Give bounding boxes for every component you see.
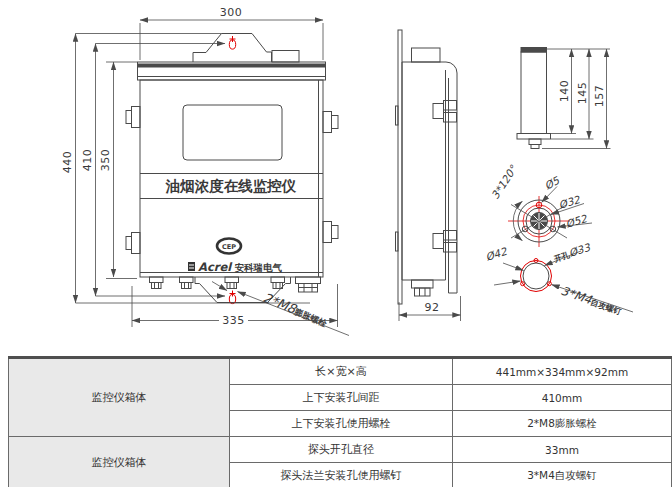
value-cell: 2*M8膨胀螺栓 bbox=[453, 411, 672, 437]
brand-text: Acrel 安科瑞电气 bbox=[198, 260, 282, 274]
angle-label: 3*120° bbox=[489, 163, 520, 201]
dim-440: 440 bbox=[61, 151, 74, 174]
param-cell: 探头开孔直径 bbox=[230, 437, 453, 463]
dia52-label: Ø52 bbox=[564, 212, 589, 230]
dim-92: 92 bbox=[425, 301, 440, 314]
value-cell: 441mm×334mm×92mm bbox=[453, 358, 672, 385]
hinge-upper bbox=[433, 101, 457, 123]
probe-flange bbox=[517, 134, 551, 140]
param-cell: 上下安装孔使用螺栓 bbox=[230, 411, 453, 437]
value-cell: 410mm bbox=[453, 385, 672, 411]
value-cell: 33mm bbox=[453, 437, 672, 463]
latch-right-upper bbox=[323, 112, 338, 133]
probe-side-view: 140 145 157 bbox=[517, 48, 611, 149]
m8-label: 2*M8膨胀螺栓 bbox=[261, 290, 330, 330]
latch-left-upper bbox=[126, 107, 140, 128]
m8-label-small: 膨胀螺栓 bbox=[292, 306, 329, 329]
dia42-label: Ø42 bbox=[484, 244, 510, 263]
latch-right-lower bbox=[323, 222, 338, 243]
large-gland bbox=[296, 277, 321, 292]
technical-drawing: 油烟浓度在线监控仪 CEP Acrel 安科瑞电气 bbox=[0, 0, 672, 346]
side-corner bbox=[446, 62, 457, 73]
opening-label-dia: Ø33 bbox=[567, 240, 593, 259]
group-cell-probe: 监控仪箱体 bbox=[9, 437, 230, 487]
mounting-plate bbox=[398, 30, 402, 304]
side-top-protrusion bbox=[412, 48, 441, 62]
table-row: 监控仪箱体 探头开孔直径 33mm bbox=[9, 437, 672, 463]
top-bracket-block bbox=[272, 51, 299, 63]
probe-hole-view: Ø42 开孔Ø33 3*M4自攻螺钉 bbox=[484, 240, 633, 317]
dim-300: 300 bbox=[220, 6, 243, 19]
dim-350: 350 bbox=[99, 149, 112, 172]
side-gland bbox=[412, 280, 434, 296]
group-cell-enclosure: 监控仪箱体 bbox=[9, 358, 230, 437]
flange-top-view: 3*120° Ø5 Ø32 Ø52 bbox=[489, 163, 592, 247]
dia5-label: Ø5 bbox=[542, 174, 562, 192]
page: 油烟浓度在线监控仪 CEP Acrel 安科瑞电气 bbox=[0, 0, 672, 487]
probe-cap bbox=[521, 48, 547, 53]
top-keyhole-icon bbox=[229, 36, 235, 49]
dim-140: 140 bbox=[558, 80, 571, 103]
brand-cn: 安科瑞电气 bbox=[231, 262, 282, 273]
brand-name: Acrel bbox=[198, 260, 233, 274]
dim-145: 145 bbox=[576, 82, 589, 105]
hinge-lower bbox=[433, 231, 457, 253]
m4-label: 3*M4自攻螺钉 bbox=[559, 284, 625, 318]
table-row: 监控仪箱体 长×宽×高 441mm×334mm×92mm bbox=[9, 358, 672, 385]
top-band-fill bbox=[138, 64, 326, 68]
acrel-logo-icon bbox=[188, 262, 195, 271]
brand-line: Acrel 安科瑞电气 bbox=[188, 260, 282, 274]
opening-circle bbox=[523, 263, 549, 289]
param-cell: 上下安装孔间距 bbox=[230, 385, 453, 411]
dim-335: 335 bbox=[222, 314, 245, 327]
param-cell: 长×宽×高 bbox=[230, 358, 453, 385]
opening-label: 开孔Ø33 bbox=[551, 240, 593, 264]
param-cell: 探头法兰安装孔使用螺钉 bbox=[230, 463, 453, 487]
cable-glands bbox=[150, 277, 321, 292]
device-title: 油烟浓度在线监控仪 bbox=[165, 178, 297, 194]
dim-157: 157 bbox=[593, 85, 606, 108]
dim-410: 410 bbox=[81, 149, 94, 172]
m4-label-big: 3*M4 bbox=[559, 284, 594, 308]
latch-left-lower bbox=[126, 233, 140, 254]
probe-body bbox=[521, 52, 547, 134]
front-view: 油烟浓度在线监控仪 CEP Acrel 安科瑞电气 bbox=[61, 6, 349, 336]
logo: CEP bbox=[217, 239, 241, 254]
side-view: 92 bbox=[396, 30, 461, 321]
logo-text: CEP bbox=[222, 243, 236, 251]
spec-table: 监控仪箱体 长×宽×高 441mm×334mm×92mm 上下安装孔间距 410… bbox=[8, 356, 672, 487]
m4-label-small: 自攻螺钉 bbox=[589, 298, 623, 317]
display-screen bbox=[183, 105, 282, 160]
bottom-keyhole-icon bbox=[229, 291, 235, 304]
value-cell: 3*M4自攻螺钉 bbox=[453, 463, 672, 487]
